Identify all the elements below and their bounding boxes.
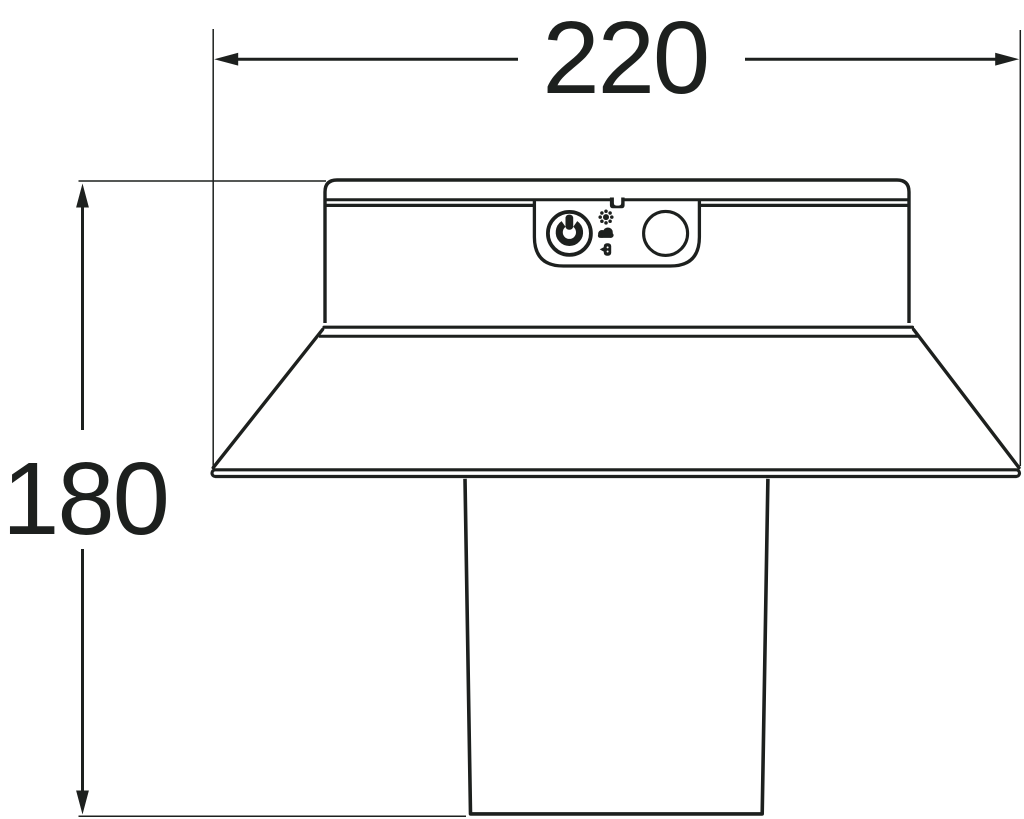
svg-text:180: 180 — [2, 441, 168, 556]
svg-text:220: 220 — [542, 0, 708, 115]
